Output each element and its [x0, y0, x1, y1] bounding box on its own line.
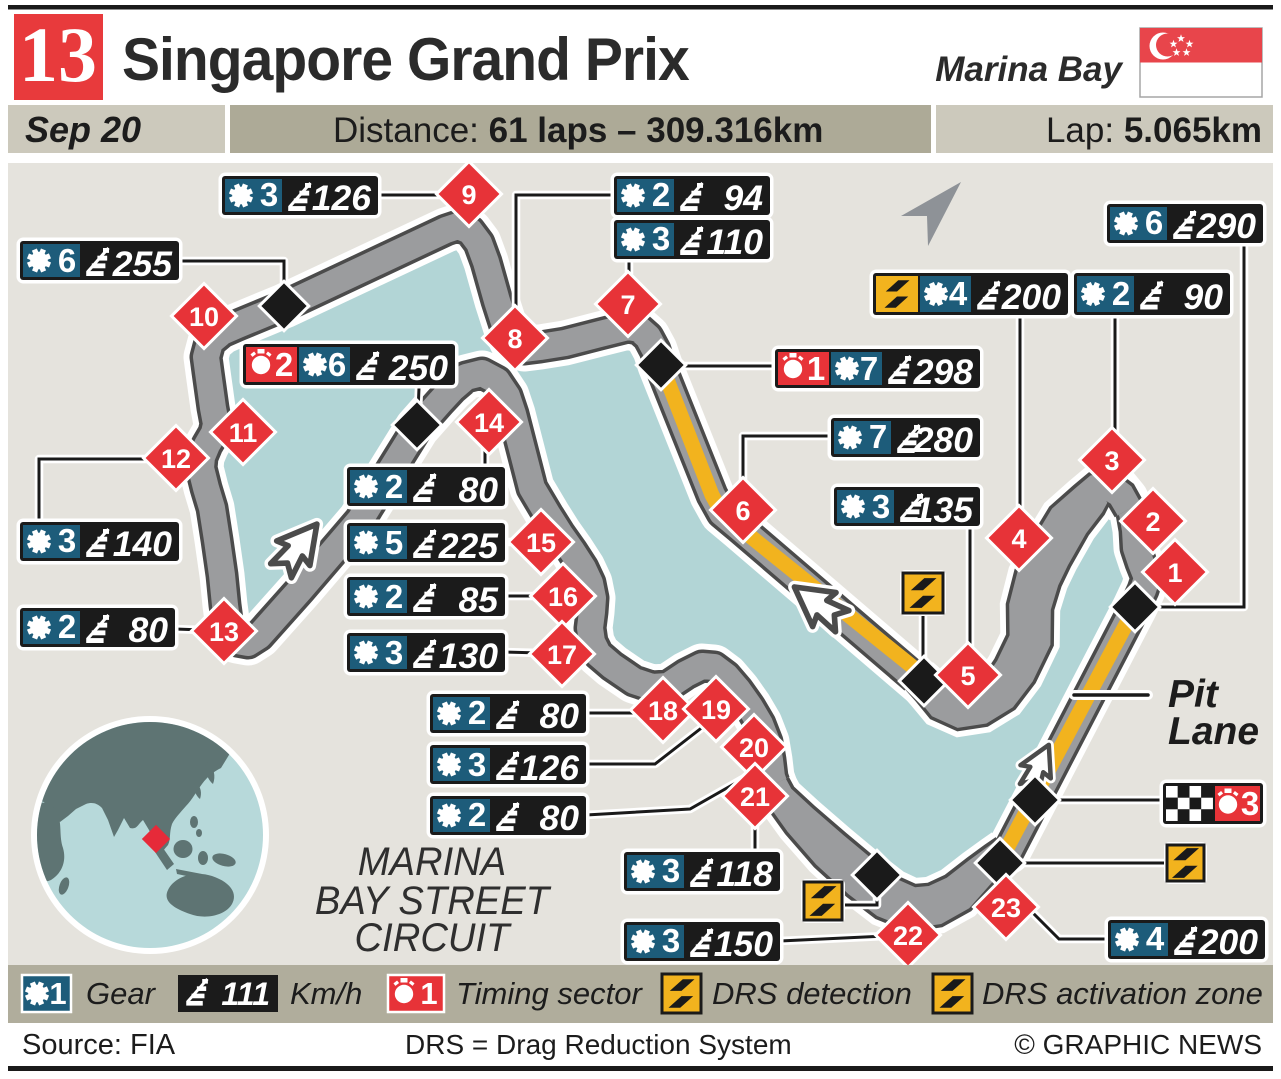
svg-text:4: 4 [949, 275, 968, 312]
svg-text:200: 200 [1001, 277, 1061, 317]
svg-text:2: 2 [58, 608, 76, 645]
svg-text:23: 23 [991, 893, 1021, 923]
svg-text:7: 7 [860, 350, 878, 387]
svg-text:Sep 20: Sep 20 [25, 109, 141, 150]
svg-text:6: 6 [58, 242, 76, 279]
svg-text:280: 280 [913, 420, 973, 460]
svg-text:© GRAPHIC NEWS: © GRAPHIC NEWS [1014, 1029, 1262, 1060]
svg-text:2: 2 [385, 468, 403, 505]
svg-text:14: 14 [474, 408, 504, 438]
svg-text:3: 3 [468, 746, 486, 783]
svg-text:13: 13 [19, 11, 97, 98]
svg-text:111: 111 [221, 976, 270, 1012]
svg-text:17: 17 [547, 640, 577, 670]
svg-text:2: 2 [468, 694, 486, 731]
svg-text:Km/h: Km/h [290, 976, 362, 1011]
svg-text:2: 2 [385, 578, 403, 615]
svg-text:298: 298 [913, 352, 973, 392]
svg-text:3: 3 [58, 522, 76, 559]
svg-text:3: 3 [652, 220, 670, 257]
svg-text:4: 4 [1011, 524, 1026, 554]
svg-text:1: 1 [420, 976, 437, 1011]
svg-text:135: 135 [914, 490, 974, 530]
svg-text:CIRCUIT: CIRCUIT [355, 916, 513, 960]
svg-text:Distance: 61 laps – 309.316km: Distance: 61 laps – 309.316km [333, 111, 823, 150]
svg-text:Timing sector: Timing sector [456, 976, 643, 1011]
svg-text:Lap: 5.065km: Lap: 5.065km [1046, 111, 1262, 150]
svg-text:200: 200 [1198, 922, 1258, 962]
svg-text:15: 15 [526, 528, 556, 558]
svg-text:2: 2 [1145, 507, 1160, 537]
svg-text:255: 255 [112, 244, 173, 284]
svg-text:3: 3 [1241, 785, 1259, 822]
svg-text:5: 5 [385, 524, 403, 561]
svg-text:DRS = Drag Reduction System: DRS = Drag Reduction System [405, 1029, 792, 1060]
svg-text:1: 1 [1167, 558, 1182, 588]
svg-text:85: 85 [459, 580, 500, 620]
svg-text:7: 7 [869, 418, 887, 455]
svg-text:Source: FIA: Source: FIA [22, 1029, 176, 1061]
svg-text:MARINA: MARINA [358, 840, 507, 884]
svg-text:6: 6 [328, 346, 346, 383]
svg-text:94: 94 [724, 178, 764, 218]
svg-text:290: 290 [1196, 206, 1256, 246]
svg-text:3: 3 [260, 176, 278, 213]
svg-text:80: 80 [540, 798, 580, 838]
svg-text:90: 90 [1184, 277, 1224, 317]
svg-text:4: 4 [1146, 920, 1165, 957]
svg-text:80: 80 [540, 696, 580, 736]
svg-text:11: 11 [229, 418, 258, 448]
svg-text:140: 140 [113, 524, 172, 564]
svg-text:Lane: Lane [1168, 710, 1259, 753]
svg-text:20: 20 [739, 733, 769, 763]
svg-text:126: 126 [520, 748, 579, 788]
svg-text:250: 250 [388, 348, 448, 388]
svg-text:6: 6 [735, 496, 750, 526]
svg-text:12: 12 [161, 444, 191, 474]
svg-text:3: 3 [662, 852, 680, 889]
svg-text:80: 80 [459, 470, 499, 510]
svg-text:5: 5 [960, 661, 975, 691]
svg-text:16: 16 [548, 582, 578, 612]
svg-text:130: 130 [439, 636, 498, 676]
svg-text:DRS detection: DRS detection [712, 976, 912, 1011]
svg-text:3: 3 [872, 488, 890, 525]
svg-text:18: 18 [648, 696, 678, 726]
svg-text:13: 13 [209, 617, 239, 647]
svg-text:2: 2 [652, 176, 670, 213]
svg-text:DRS activation zone: DRS activation zone [982, 976, 1263, 1011]
svg-text:1: 1 [49, 976, 66, 1011]
svg-text:22: 22 [893, 921, 923, 951]
svg-text:6: 6 [1145, 204, 1163, 241]
svg-text:Gear: Gear [86, 976, 157, 1011]
svg-text:19: 19 [701, 695, 731, 725]
svg-text:150: 150 [714, 924, 773, 964]
svg-text:8: 8 [507, 324, 522, 354]
svg-text:3: 3 [662, 922, 680, 959]
svg-text:80: 80 [129, 610, 169, 650]
svg-text:21: 21 [740, 782, 770, 812]
svg-text:9: 9 [461, 180, 476, 210]
svg-text:Marina Bay: Marina Bay [935, 50, 1123, 89]
svg-text:2: 2 [275, 346, 293, 383]
svg-text:2: 2 [1112, 275, 1130, 312]
svg-text:2: 2 [468, 796, 486, 833]
svg-text:3: 3 [1104, 446, 1119, 476]
svg-text:118: 118 [716, 854, 773, 894]
svg-text:126: 126 [312, 178, 371, 218]
svg-text:225: 225 [438, 526, 499, 566]
svg-text:110: 110 [706, 222, 763, 262]
svg-text:1: 1 [807, 350, 825, 387]
svg-text:3: 3 [385, 634, 403, 671]
svg-text:7: 7 [620, 290, 635, 320]
svg-text:10: 10 [189, 302, 219, 332]
svg-text:Singapore Grand Prix: Singapore Grand Prix [122, 27, 690, 94]
